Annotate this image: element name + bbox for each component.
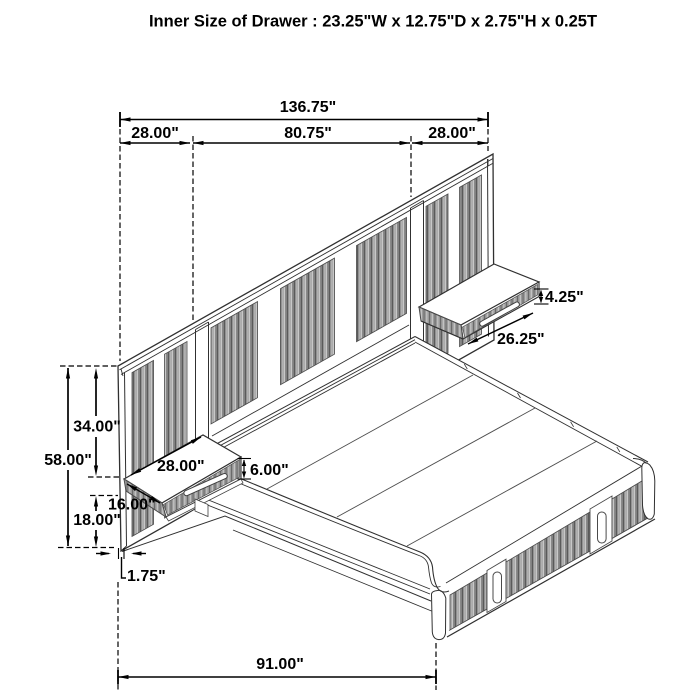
svg-text:91.00": 91.00" [256, 656, 304, 673]
svg-text:136.75": 136.75" [280, 99, 337, 116]
svg-text:16.00": 16.00" [108, 497, 156, 514]
svg-text:26.25": 26.25" [497, 331, 545, 348]
svg-text:28.00": 28.00" [157, 458, 205, 475]
svg-text:58.00": 58.00" [44, 452, 92, 469]
svg-text:6.00": 6.00" [250, 462, 289, 479]
svg-text:1.75": 1.75" [127, 568, 166, 585]
svg-text:Inner Size of Drawer : 23.25"W: Inner Size of Drawer : 23.25"W x 12.75"D… [149, 13, 597, 31]
svg-text:80.75": 80.75" [284, 125, 332, 142]
svg-text:28.00": 28.00" [428, 125, 476, 142]
svg-text:34.00": 34.00" [73, 419, 121, 436]
svg-text:28.00": 28.00" [131, 125, 179, 142]
svg-text:18.00": 18.00" [73, 512, 121, 529]
svg-text:4.25": 4.25" [545, 289, 584, 306]
